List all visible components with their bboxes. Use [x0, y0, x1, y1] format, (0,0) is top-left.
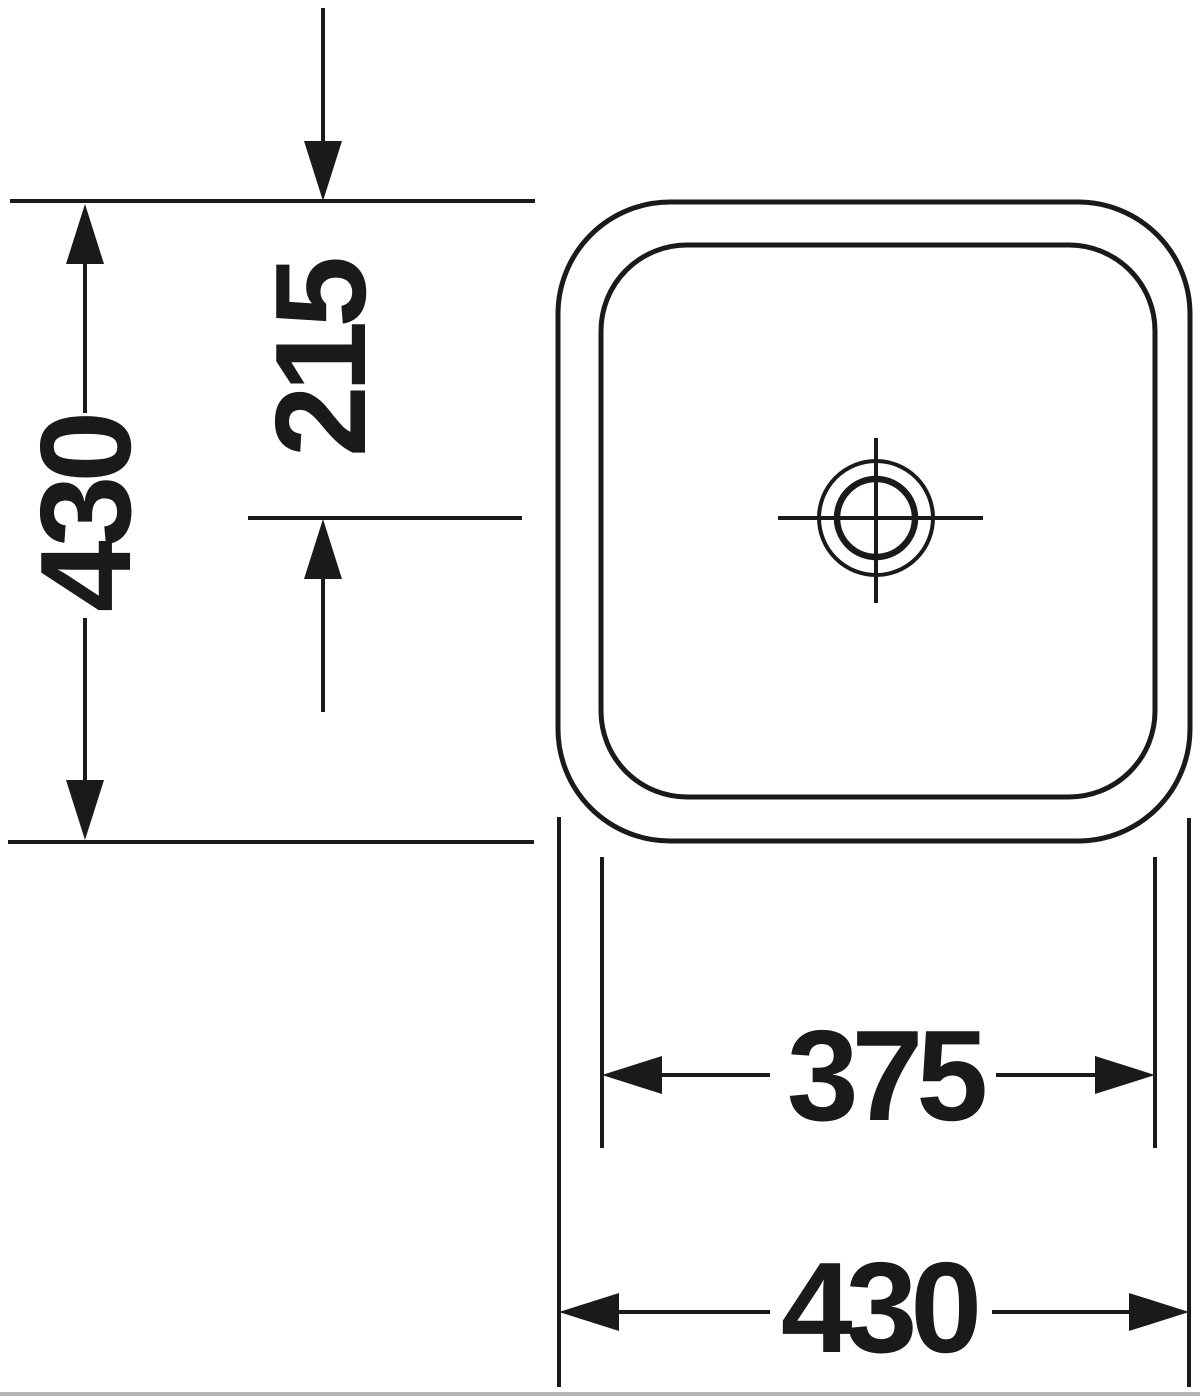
dimension-label-overall-width: 430 [781, 1236, 977, 1380]
dimension-label-overall-height: 430 [14, 416, 158, 612]
washbasin-dimension-drawing: 430 215 375 [0, 0, 1200, 1397]
arrowhead-down [304, 141, 342, 201]
image-bottom-border [0, 1392, 1200, 1396]
technical-drawing-page: 430 215 375 [0, 0, 1200, 1397]
arrowhead-down [66, 780, 104, 840]
arrowhead-left [602, 1056, 662, 1094]
arrowhead-up [304, 519, 342, 579]
dim-inner-width: 375 [602, 857, 1155, 1148]
dimension-label-drain-offset: 215 [249, 259, 393, 457]
arrowhead-right [1095, 1056, 1155, 1094]
arrowhead-up [66, 204, 104, 264]
drain [778, 438, 983, 603]
arrowhead-left [559, 1293, 619, 1331]
dimension-label-inner-width: 375 [787, 1004, 985, 1148]
dim-drain-offset: 215 [248, 8, 522, 712]
arrowhead-right [1129, 1293, 1189, 1331]
